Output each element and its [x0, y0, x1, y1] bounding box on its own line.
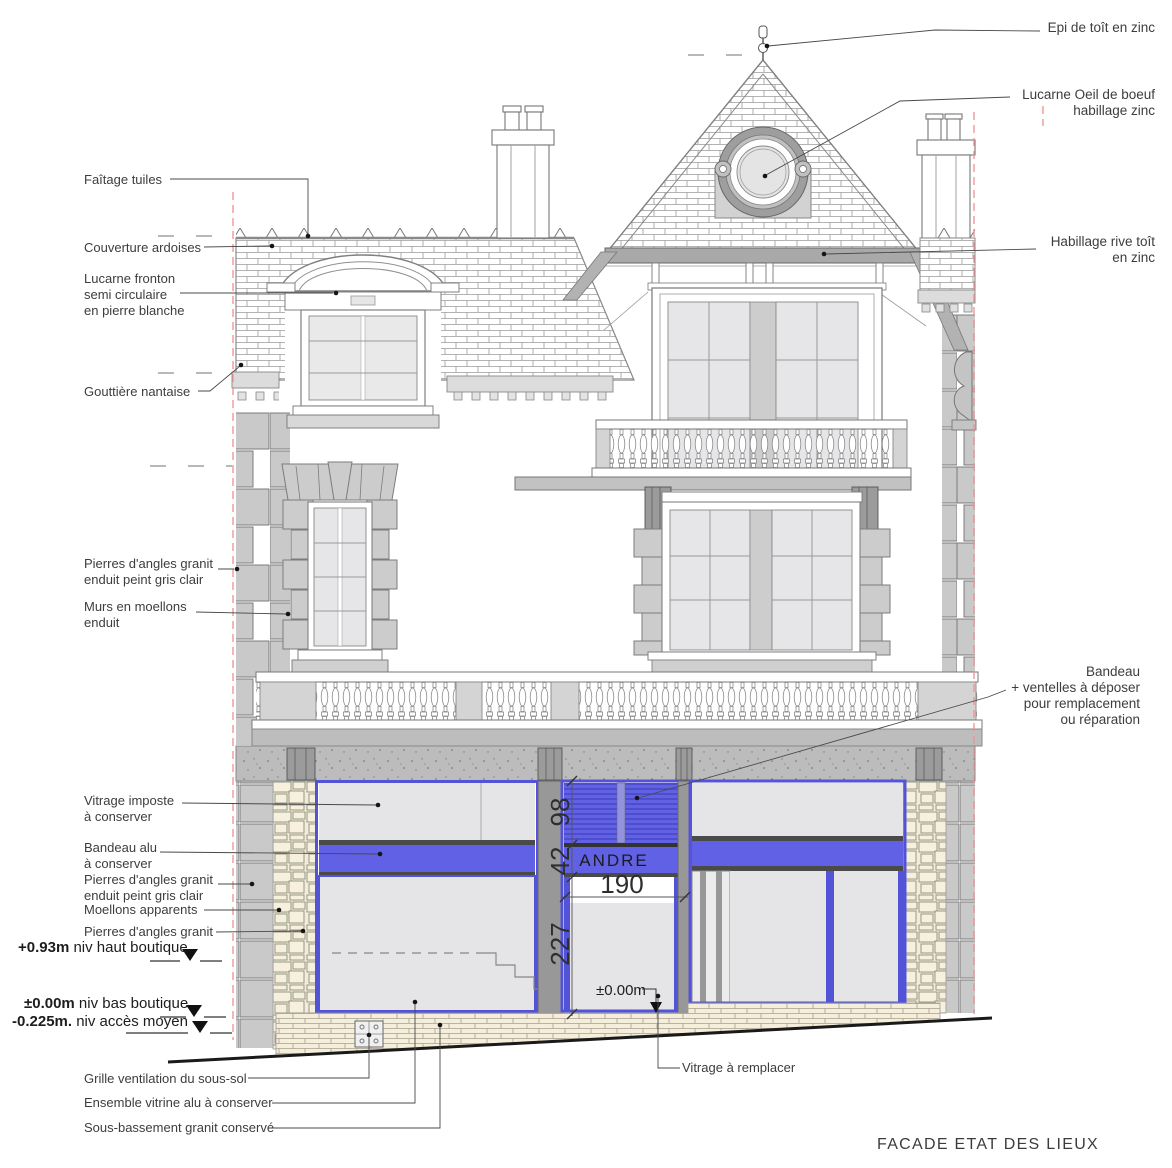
label-vitrage-imposte: Vitrage imposte à conserver — [84, 793, 174, 825]
label-gouttiere-nantaise: Gouttière nantaise — [84, 384, 190, 400]
label-text: Faîtage tuiles — [84, 172, 162, 188]
label-text: Vitrage à remplacer — [682, 1060, 795, 1076]
level-value: +0.93m — [18, 939, 69, 956]
dim-vitrine-height: 227 — [545, 922, 575, 965]
label-habillage-rive: Habillage rive toît en zinc — [1051, 234, 1155, 266]
level-haut-boutique: +0.93m niv haut boutique — [18, 939, 188, 956]
chimney-right — [917, 114, 975, 238]
label-text: Moellons apparents — [84, 902, 197, 918]
level-text: niv bas boutique — [75, 995, 188, 1012]
epi-finial — [759, 26, 768, 60]
entrance-door — [692, 871, 730, 1003]
level-acces-moyen: -0.225m. niv accès moyen — [12, 1013, 188, 1030]
label-text: en zinc — [1051, 250, 1155, 266]
label-text: Bandeau — [1011, 664, 1140, 680]
label-text: habillage zinc — [1022, 103, 1155, 119]
label-text: ou réparation — [1011, 712, 1140, 728]
label-pierres-angles: Pierres d'angles granit — [84, 924, 213, 940]
label-text: Gouttière nantaise — [84, 384, 190, 400]
label-pierres-angles-gris-2: Pierres d'angles granit enduit peint gri… — [84, 872, 213, 904]
dim-bandeau-height: 42 — [545, 847, 575, 876]
label-text: Bandeau alu — [84, 840, 157, 856]
label-faitage-tuiles: Faîtage tuiles — [84, 172, 162, 188]
storefront-left-bay — [317, 782, 551, 1013]
label-text: Grille ventilation du sous-sol — [84, 1071, 247, 1087]
rubble-pier-right — [903, 781, 946, 1013]
storefront-right-bay — [690, 781, 905, 1003]
label-bandeau-ventelles: Bandeau + ventelles à déposer pour rempl… — [1011, 664, 1140, 728]
dormer-lucarne — [267, 255, 459, 428]
chimney-left — [492, 106, 554, 238]
label-text: Pierres d'angles granit — [84, 872, 213, 888]
dim-imposte-height: 98 — [545, 798, 575, 827]
label-text: à conserver — [84, 856, 157, 872]
label-text: Pierres d'angles granit — [84, 924, 213, 940]
level-text: niv accès moyen — [72, 1013, 188, 1030]
label-moellons-apparents: Moellons apparents — [84, 902, 197, 918]
label-text: Epi de toît en zinc — [1048, 20, 1155, 36]
label-oeil-de-boeuf: Lucarne Oeil de boeuf habillage zinc — [1022, 87, 1155, 119]
label-bandeau-alu: Bandeau alu à conserver — [84, 840, 157, 872]
drawing-title: FACADE ETAT DES LIEUX — [877, 1136, 1099, 1154]
storefront — [273, 781, 946, 1057]
level-text: niv haut boutique — [69, 939, 187, 956]
label-lucarne-fronton: Lucarne fronton semi circulaire en pierr… — [84, 271, 184, 319]
label-text: semi circulaire — [84, 287, 184, 303]
label-couverture-ardoises: Couverture ardoises — [84, 240, 201, 256]
concrete-lintel-band — [236, 746, 975, 781]
label-text: enduit peint gris clair — [84, 572, 213, 588]
second-floor-right-window — [634, 487, 890, 672]
label-text: Lucarne fronton — [84, 271, 184, 287]
rubble-pier-left — [273, 781, 316, 1049]
label-text: en pierre blanche — [84, 303, 184, 319]
label-text: Lucarne Oeil de boeuf — [1022, 87, 1155, 103]
label-sous-bassement: Sous-bassement granit conservé — [84, 1120, 274, 1136]
main-balcony-balustrade — [252, 672, 982, 746]
dim-bay-width: 190 — [600, 869, 643, 899]
label-text: + ventelles à déposer — [1011, 680, 1140, 696]
label-grille-ventilation: Grille ventilation du sous-sol — [84, 1071, 247, 1087]
label-text: Couverture ardoises — [84, 240, 201, 256]
label-murs-moellons: Murs en moellons enduit — [84, 599, 187, 631]
label-epi-toit: Epi de toît en zinc — [1048, 20, 1155, 36]
label-text: pour remplacement — [1011, 696, 1140, 712]
label-text: Habillage rive toît — [1051, 234, 1155, 250]
facade-drawing-sheet: 98 42 227 190 ANDRE ±0.00m Faîtage tuile… — [0, 0, 1172, 1168]
andre-sign-text: ANDRE — [579, 851, 649, 870]
label-text: à conserver — [84, 809, 174, 825]
label-text: Murs en moellons — [84, 599, 187, 615]
label-text: enduit — [84, 615, 187, 631]
zero-level-text: ±0.00m — [596, 982, 646, 999]
label-vitrage-remplacer: Vitrage à remplacer — [682, 1060, 795, 1076]
label-text: Ensemble vitrine alu à conserver — [84, 1095, 273, 1111]
label-text: Sous-bassement granit conservé — [84, 1120, 274, 1136]
label-text: Pierres d'angles granit — [84, 556, 213, 572]
level-bas-boutique: ±0.00m niv bas boutique — [24, 995, 188, 1012]
label-pierres-angles-gris: Pierres d'angles granit enduit peint gri… — [84, 556, 213, 588]
level-value: -0.225m. — [12, 1013, 72, 1030]
label-text: Vitrage imposte — [84, 793, 174, 809]
second-floor-left-window — [282, 462, 398, 673]
label-ensemble-vitrine: Ensemble vitrine alu à conserver — [84, 1095, 273, 1111]
level-value: ±0.00m — [24, 995, 75, 1012]
upper-balcony-balustrade — [515, 420, 911, 490]
